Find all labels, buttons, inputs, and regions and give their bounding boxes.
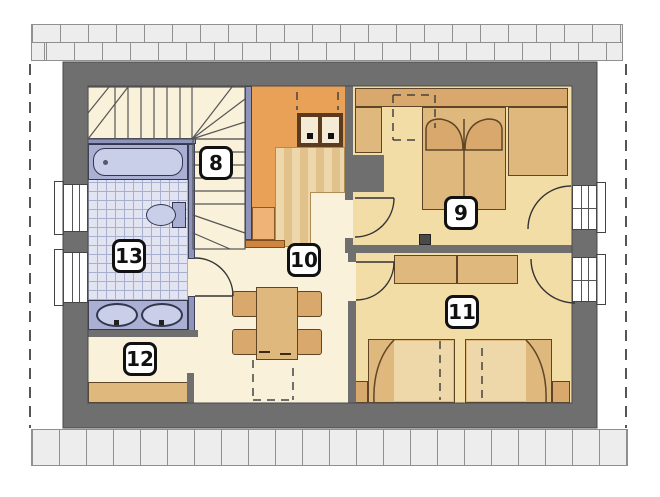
wall-bottom — [63, 403, 597, 428]
washbasin-drain — [159, 320, 164, 325]
room-label-13: 13 — [112, 239, 146, 273]
bed-blanket — [467, 341, 526, 401]
roof-band-top-row1 — [32, 25, 622, 43]
window-transom — [573, 280, 596, 281]
bathroom-wall-right-upper — [188, 144, 195, 259]
room-label-8-text: 8 — [209, 153, 223, 173]
wall-divider-9-11 — [345, 245, 572, 253]
wall-room11-left-lower — [348, 301, 356, 403]
nightstand-icon — [552, 381, 570, 403]
room-label-10: 10 — [287, 243, 321, 277]
room-label-8: 8 — [199, 146, 233, 180]
chair-icon — [296, 329, 322, 355]
chair-icon — [232, 291, 258, 317]
window-glazing — [79, 185, 80, 231]
wall-top — [63, 62, 597, 86]
room-label-11: 11 — [445, 295, 479, 329]
flue-box-on-wall — [419, 234, 431, 245]
window-left-2 — [63, 252, 88, 303]
window-sill — [596, 254, 606, 305]
chimney-flue-dot — [328, 133, 334, 139]
chimney-flue-2 — [318, 117, 339, 143]
dining-table-icon — [256, 287, 298, 360]
window-right-room9 — [572, 185, 597, 230]
sofa-divider — [456, 256, 458, 283]
wardrobe-icon — [355, 107, 382, 153]
void-railing — [245, 240, 285, 248]
wall-stub-room12 — [187, 373, 194, 403]
wall-room9-block — [353, 155, 384, 192]
double-bed-icon — [422, 107, 506, 210]
room-label-10-text: 10 — [290, 250, 318, 270]
washbasin-drain — [114, 320, 119, 325]
chair-icon — [232, 329, 258, 355]
roof-band-bottom — [31, 429, 628, 466]
window-glazing — [72, 185, 73, 231]
roof-band-bottom-row — [32, 430, 627, 465]
room-label-12: 12 — [123, 342, 157, 376]
cabinet-strip-room9 — [355, 88, 568, 107]
roof-band-top-row2 — [32, 42, 622, 61]
window-sill — [596, 182, 606, 233]
chimney-icon — [297, 113, 343, 147]
wall-left-pier — [63, 232, 88, 252]
counter-room12 — [88, 382, 188, 403]
chimney-flue-1 — [301, 117, 318, 143]
wall-right-upper — [572, 62, 597, 185]
bed-blanket — [394, 341, 453, 401]
chair-icon — [296, 291, 322, 317]
toilet-icon — [146, 204, 176, 226]
wall-room11-left-upper — [348, 253, 356, 262]
bathtub-drain — [103, 160, 108, 165]
wall-right-pier — [572, 230, 597, 257]
wall-left-upper — [63, 62, 88, 184]
window-transom — [573, 208, 596, 209]
room-label-12-text: 12 — [126, 349, 154, 369]
roof-band-top — [31, 24, 623, 61]
window-left-1 — [63, 184, 88, 232]
wall-room9-left-upper — [345, 86, 353, 200]
room-label-13-text: 13 — [115, 246, 143, 266]
stair-void-column — [252, 147, 275, 207]
room-label-11-text: 11 — [448, 302, 476, 322]
floor-plan-canvas: 8 13 10 9 11 12 — [0, 0, 660, 497]
room-label-9: 9 — [444, 196, 478, 230]
window-glazing — [72, 253, 73, 302]
bathroom-wall-bottom — [85, 330, 198, 337]
window-right-room11 — [572, 257, 597, 302]
chimney-flue-dot — [307, 133, 313, 139]
window-glazing — [79, 253, 80, 302]
stair-void-step — [252, 207, 275, 240]
room-label-9-text: 9 — [454, 203, 468, 223]
wardrobe-icon — [508, 107, 568, 176]
stair-balustrade-wall — [245, 86, 252, 240]
hall-floor-notch — [310, 192, 345, 247]
